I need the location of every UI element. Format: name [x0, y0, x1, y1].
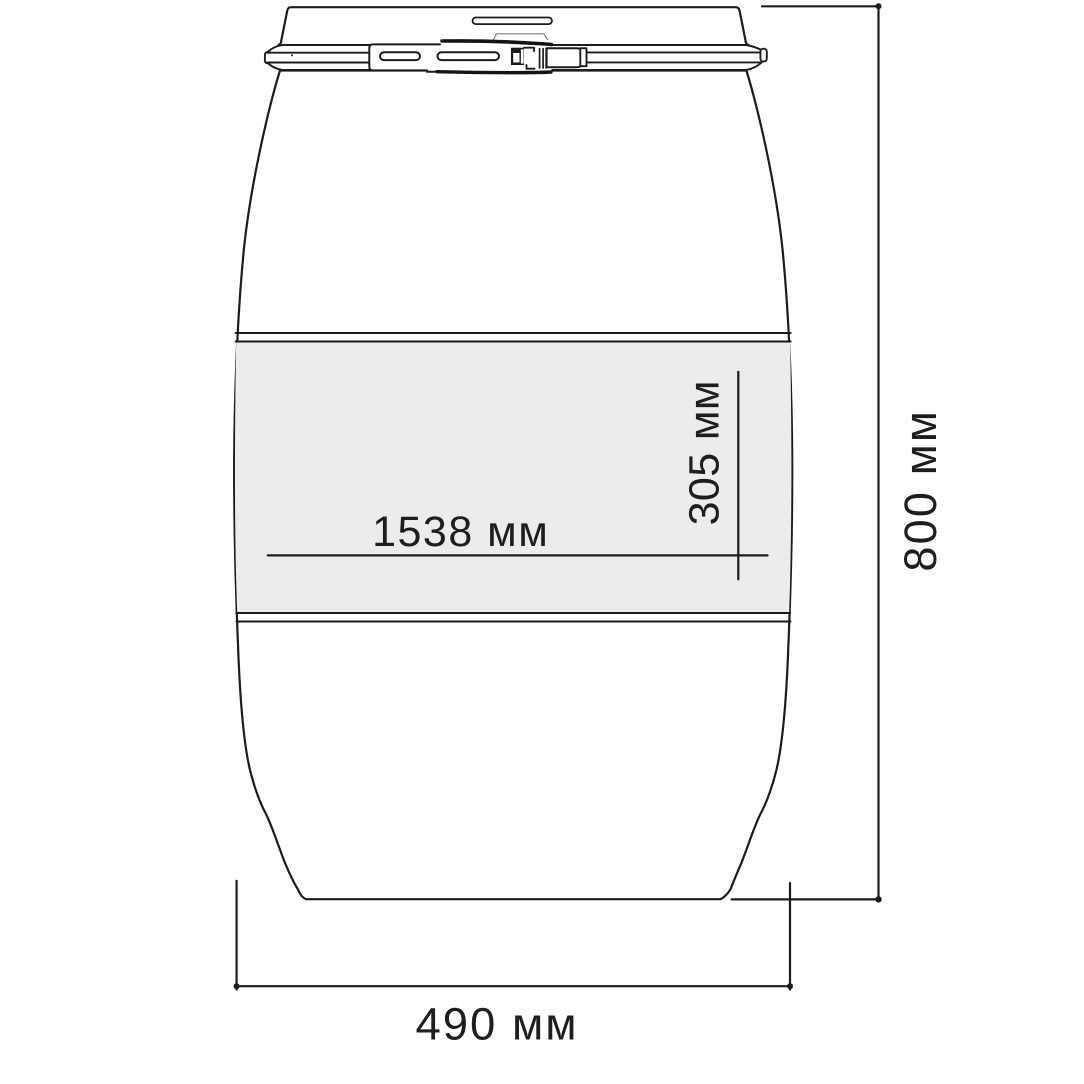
svg-text:1538 мм: 1538 мм — [372, 508, 549, 556]
svg-text:305 мм: 305 мм — [681, 380, 729, 525]
svg-text:490 мм: 490 мм — [415, 998, 578, 1049]
svg-text:800 мм: 800 мм — [895, 409, 946, 572]
